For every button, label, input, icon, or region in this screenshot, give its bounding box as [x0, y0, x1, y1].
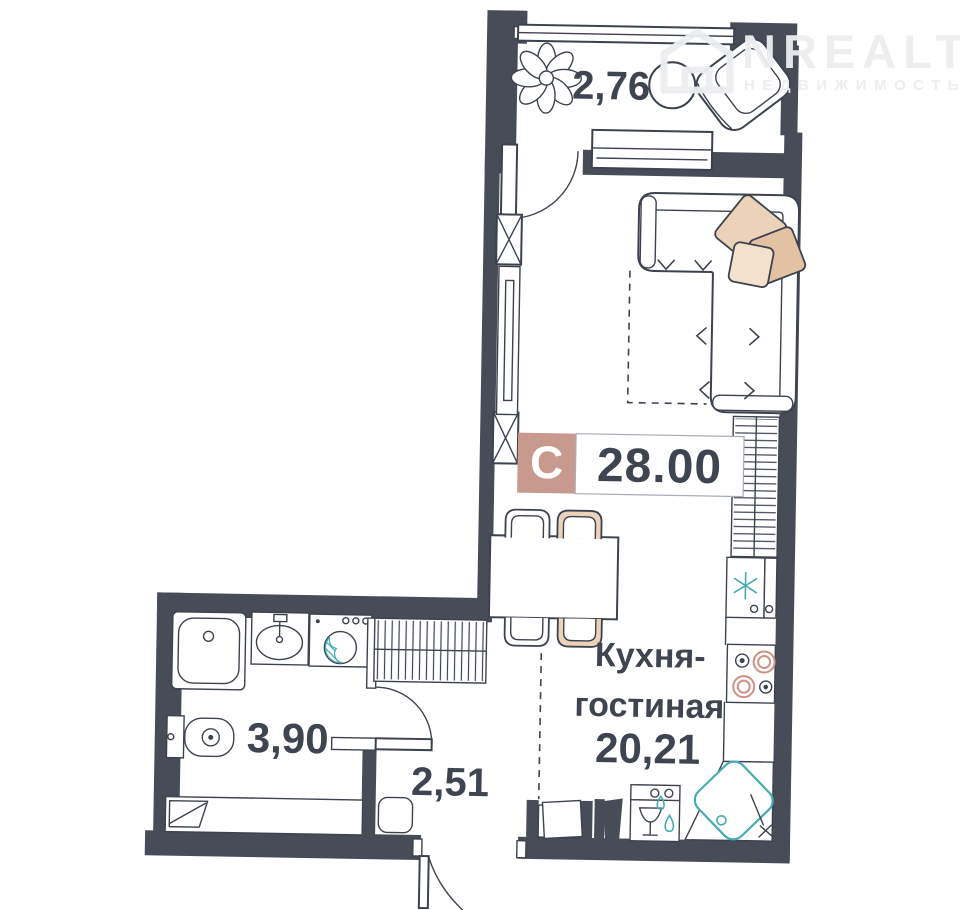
- bathroom-counter: [165, 797, 363, 835]
- balcony-area-label: 2,76: [572, 64, 651, 109]
- stove-icon: [726, 644, 775, 703]
- bathroom-sink-icon: [251, 612, 309, 665]
- room-divider-dashed: [539, 653, 542, 799]
- hallway-area-label: 2,51: [411, 760, 490, 805]
- bathroom-area-label: 3,90: [246, 714, 329, 762]
- kitchen-name-line2: гостиная: [574, 686, 724, 727]
- side-window: [496, 266, 520, 414]
- entry-cabinet-icon: [526, 797, 623, 844]
- shower-icon: [172, 612, 246, 690]
- watermark-subtitle: НЕДВИЖИМОСТЬ: [744, 77, 960, 94]
- hallway-wardrobe-icon: [374, 618, 487, 683]
- type-badge-letter: С: [530, 436, 564, 489]
- chair-icon: [557, 510, 601, 539]
- stool-icon: [378, 797, 413, 833]
- fridge-icon: [726, 557, 777, 618]
- washing-machine-icon: [309, 614, 372, 667]
- balcony-window: [592, 130, 713, 170]
- entrance-door-icon: [411, 839, 526, 910]
- type-badge: С 28.00: [517, 433, 744, 497]
- floor-plan: 2,76 С 28.00 Кухня- гостиная 20,21 3,90 …: [0, 0, 960, 910]
- chair-icon: [505, 509, 549, 538]
- sofa-bed-extension: [628, 271, 709, 404]
- toilet-icon: [166, 716, 234, 759]
- kitchen-name-line1: Кухня-: [595, 636, 706, 676]
- watermark-brand: NREALT: [742, 25, 960, 78]
- kitchen-area-label: 20,21: [595, 724, 701, 773]
- dining-table-icon: [489, 535, 618, 619]
- dishwasher-icon: [630, 785, 680, 842]
- balcony-door-icon: [501, 144, 578, 219]
- chair-icon: [504, 617, 548, 646]
- floorplan-page: 2,76 С 28.00 Кухня- гостиная 20,21 3,90 …: [0, 0, 960, 910]
- total-area-label: 28.00: [597, 439, 723, 494]
